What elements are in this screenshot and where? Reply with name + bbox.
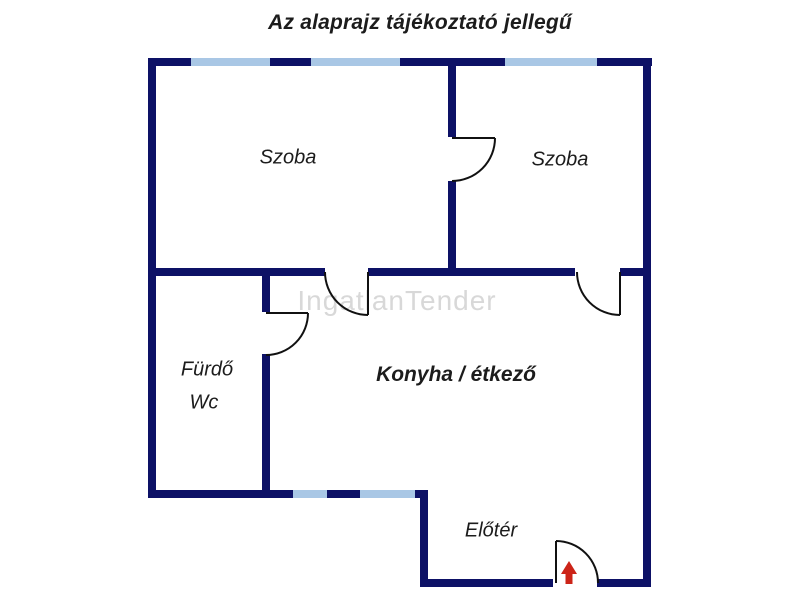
wall-bathroom-bottom — [262, 354, 270, 498]
doors — [266, 138, 620, 583]
wall-middle-left — [148, 268, 325, 276]
room-label-furdo: Fürdő — [181, 359, 233, 382]
wall-left — [148, 58, 156, 498]
room-label-eloter: Előtér — [465, 520, 517, 543]
window-top-2 — [311, 58, 400, 66]
wall-room-divider-bottom — [448, 181, 456, 276]
wall-middle-right — [620, 268, 651, 276]
entrance-arrow-icon — [561, 561, 577, 584]
window-top-1 — [191, 58, 270, 66]
door-swing-arc — [452, 138, 495, 181]
floorplan-page: Az alaprajz tájékoztató jellegű Ingatlan… — [0, 0, 800, 600]
window-bottom-1 — [293, 490, 327, 498]
walls — [148, 58, 652, 587]
windows — [191, 58, 597, 498]
door-room-left-to-kitchen — [325, 272, 368, 315]
door-swing-arc — [325, 272, 368, 315]
window-top-3 — [505, 58, 597, 66]
room-label-konyha: Konyha / étkező — [376, 363, 536, 387]
wall-step-vertical — [420, 490, 428, 587]
wall-bottom-eloter-left — [420, 579, 553, 587]
floorplan-drawing — [0, 0, 800, 600]
door-bathroom — [266, 313, 308, 355]
wall-middle-center — [368, 268, 575, 276]
door-swing-arc — [577, 272, 620, 315]
room-label-szoba-left: Szoba — [260, 147, 317, 170]
room-label-wc: Wc — [190, 392, 219, 415]
wall-bathroom-top — [262, 268, 270, 312]
door-swing-arc — [266, 313, 308, 355]
wall-room-divider-top — [448, 58, 456, 137]
window-bottom-2 — [360, 490, 415, 498]
door-between-rooms — [452, 138, 495, 181]
door-entrance — [556, 541, 598, 583]
door-swing-arc — [556, 541, 598, 583]
wall-bottom-eloter-right — [597, 579, 651, 587]
wall-right — [643, 58, 651, 587]
door-room-right-to-kitchen — [577, 272, 620, 315]
room-label-szoba-right: Szoba — [532, 149, 589, 172]
